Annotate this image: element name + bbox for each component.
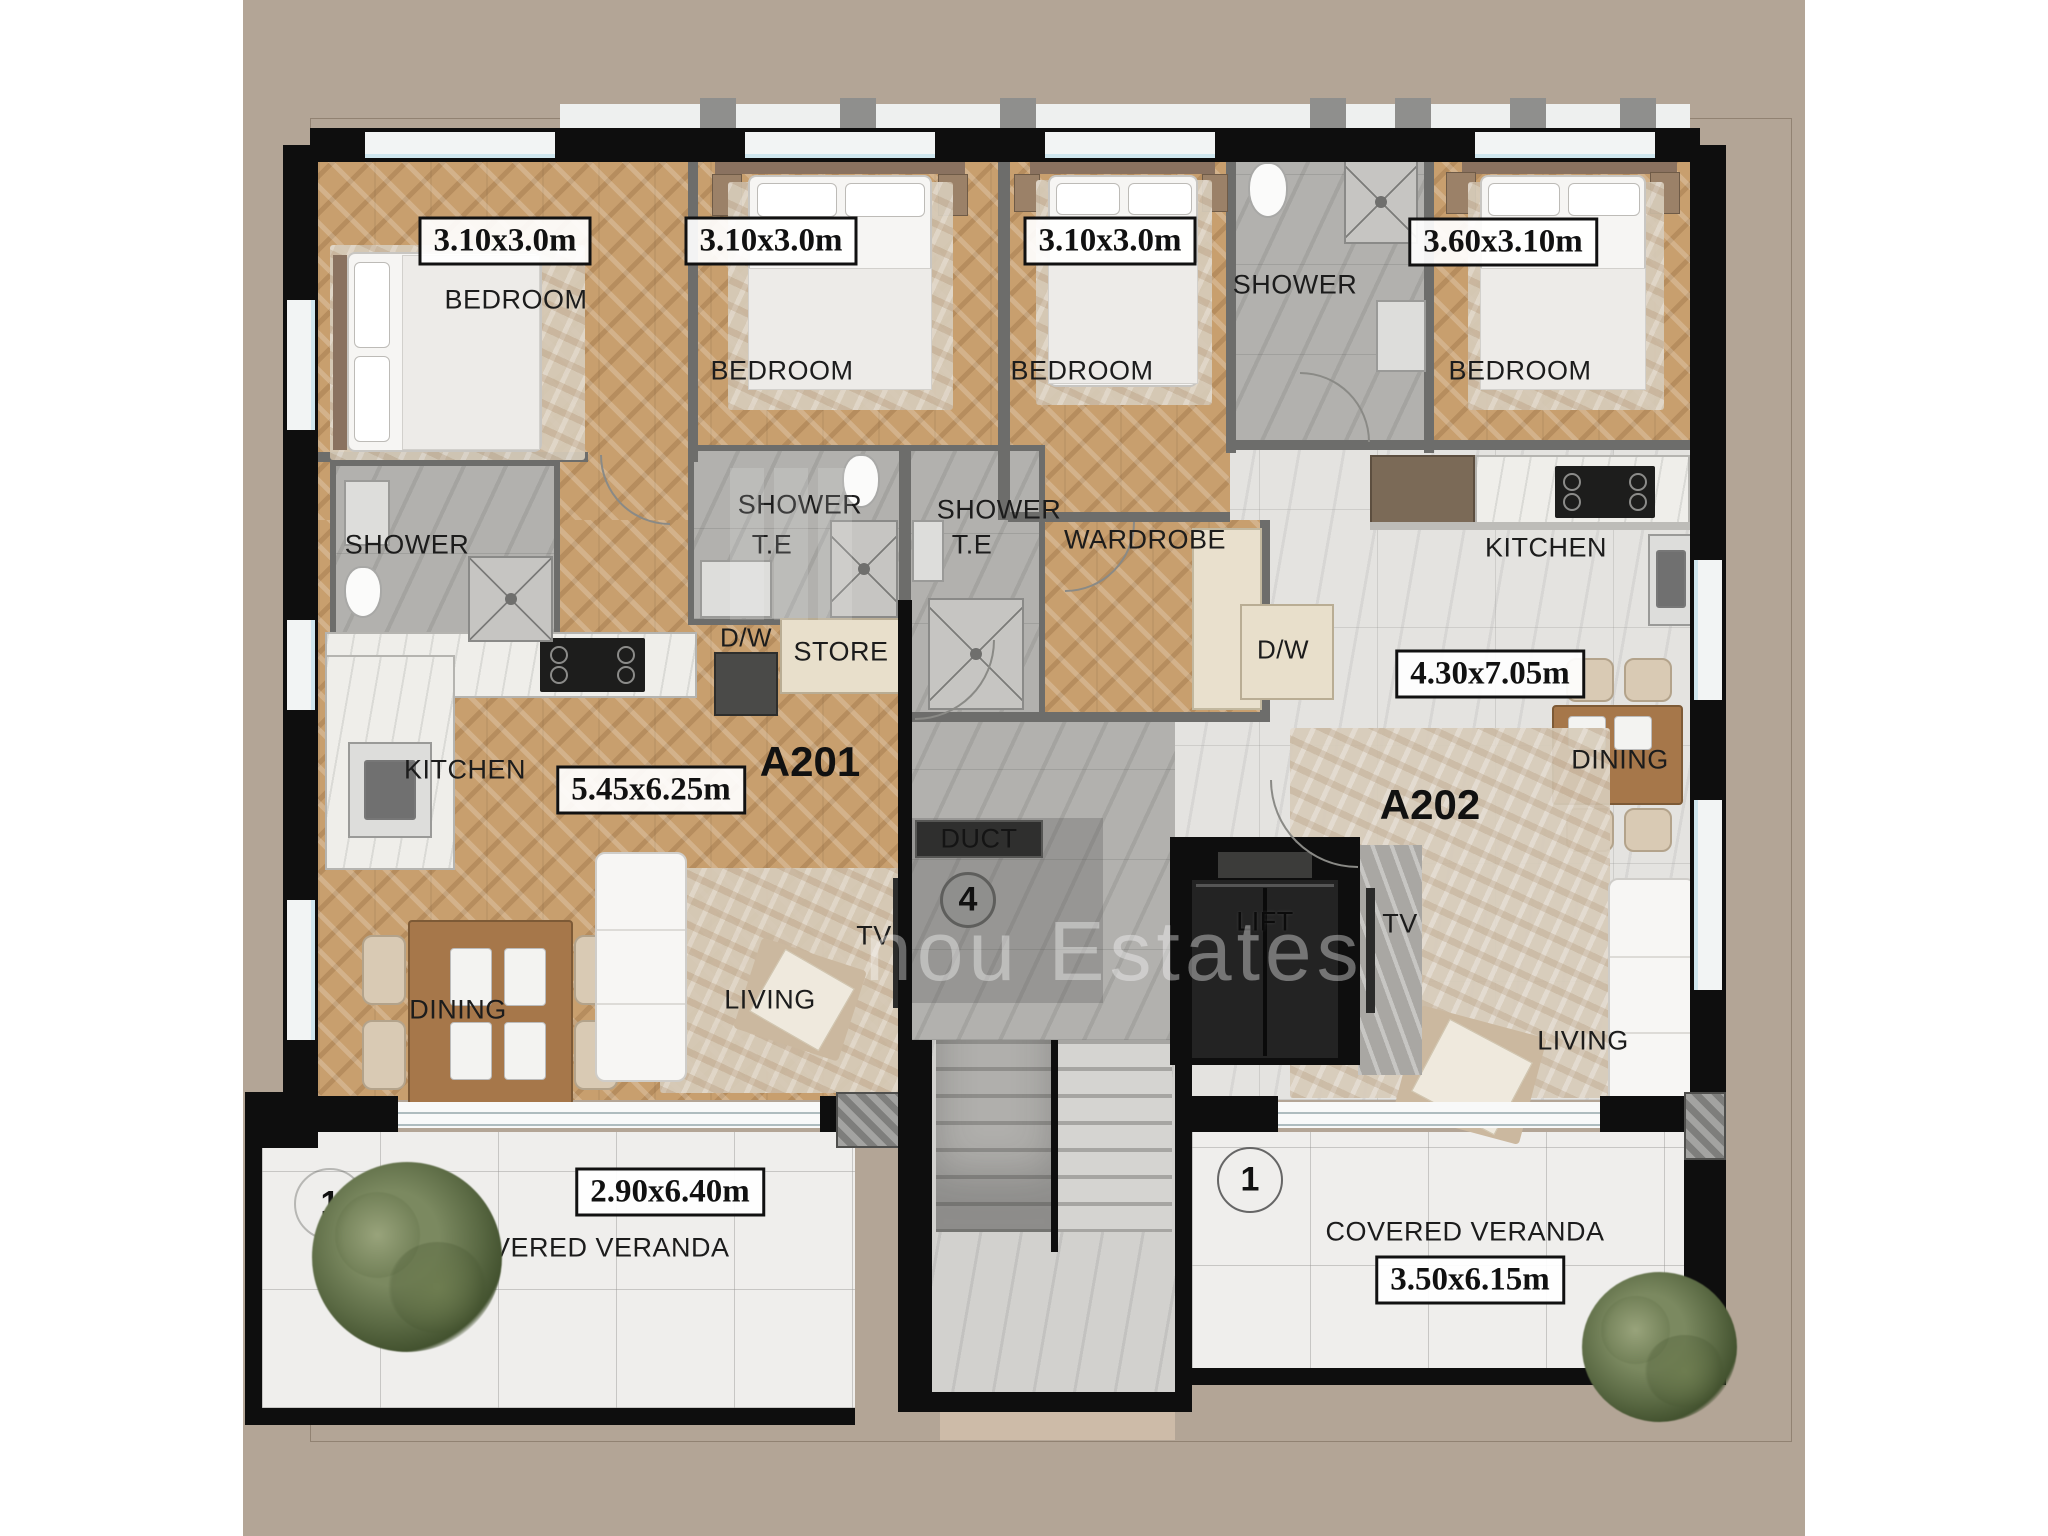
stairs-flight-down [936,1040,1052,1232]
dim-bedroom2: 3.10x3.0m [685,217,858,266]
shower-tray [1344,160,1418,244]
pillow [1568,183,1640,216]
label-veranda-right: COVERED VERANDA [1325,1217,1604,1248]
dim-bedroom1: 3.10x3.0m [419,217,592,266]
lift-door-line [1196,884,1334,887]
wall-stub [1310,98,1346,130]
tv-right-unit [1366,888,1375,1013]
window [287,300,315,430]
label-bedroom1: BEDROOM [444,285,587,316]
plant [312,1162,502,1352]
wall-a202-bottom-seg [1192,1096,1278,1132]
chair [1624,658,1672,702]
veranda-left-wall-w [245,1132,262,1425]
window [1694,800,1722,990]
counter-edge [1370,522,1690,530]
chair [1624,808,1672,852]
bath-sink [912,520,944,582]
wall-hall-top [905,712,1270,722]
dim-bedroom4: 3.60x3.10m [1408,218,1598,267]
pillow [1056,183,1120,215]
label-shower-te2: SHOWER [937,495,1062,526]
stove [1555,466,1655,518]
place-setting [504,948,546,1006]
stairs-flight-up [1058,1040,1172,1232]
window [1045,132,1215,158]
label-bedroom2: BEDROOM [710,356,853,387]
watermark-logo-bar [818,468,852,620]
sink-basin [1656,550,1686,608]
wall-br2-br3 [998,145,1010,520]
dim-veranda-right: 3.50x6.15m [1375,1256,1565,1305]
chair [362,935,406,1005]
sofa [595,852,687,1082]
window [287,620,315,710]
stairwell-wall-left [898,1040,932,1412]
label-wardrobe: WARDROBE [1064,525,1226,556]
window [745,132,935,158]
wall-a202-bottom-seg [1600,1096,1690,1132]
label-tv-right: TV [1382,909,1418,940]
dw-left-unit [714,652,778,716]
wall-a202-top-row-bottom [1230,440,1690,450]
watermark-text: nou Estates [865,903,1364,1000]
dim-veranda-left: 2.90x6.40m [575,1168,765,1217]
sliding-glass-door [1278,1102,1600,1128]
label-shower-te2-sub: T.E [952,530,993,561]
pillow [354,356,390,442]
label-dw-left: D/W [720,623,772,654]
sofa [1608,878,1696,1113]
pillow [757,183,837,217]
pillow [354,262,390,348]
label-living-left: LIVING [724,985,816,1016]
label-bedroom4: BEDROOM [1448,356,1591,387]
wall-stub [1395,98,1431,130]
window [287,900,315,1040]
place-setting [450,1022,492,1080]
wall-stub [1510,98,1546,130]
label-duct: DUCT [941,824,1018,855]
entrance-step [940,1412,1175,1440]
sliding-glass-door [398,1102,820,1128]
label-living-right: LIVING [1537,1026,1629,1057]
stairwell-wall-bottom [898,1392,1192,1412]
shower-tray [468,556,553,642]
dim-living-left: 5.45x6.25m [556,766,746,815]
label-dw-right: D/W [1257,635,1309,666]
toilet [1248,162,1288,218]
dim-bedroom3: 3.10x3.0m [1024,217,1197,266]
bath-sink [1376,300,1426,372]
label-dining-right: DINING [1571,745,1669,776]
chair [362,1020,406,1090]
label-store: STORE [793,637,888,668]
wall-stub [1000,98,1036,130]
watermark-logo-bar [774,468,808,620]
wall-br1-br2 [688,145,698,462]
label-kitchen-left: KITCHEN [404,755,526,786]
pier-hatched [1684,1092,1726,1160]
wall-stub [700,98,736,130]
wall-a201-bottom-seg [318,1096,398,1132]
wall-stub [1620,98,1656,130]
label-dining-left: DINING [409,995,507,1026]
veranda-corner-block [245,1092,318,1148]
kitchen-cabinet [1370,455,1475,528]
label-apartment-a201: A201 [760,738,860,786]
dim-living-right: 4.30x7.05m [1395,650,1585,699]
label-kitchen-right: KITCHEN [1485,533,1607,564]
toilet [344,566,382,618]
label-apartment-a202: A202 [1380,781,1480,829]
window [1475,132,1655,158]
pillow [845,183,925,217]
label-shower-top: SHOWER [1233,270,1358,301]
lift-corner [1192,852,1218,878]
watermark-logo-bar [730,468,764,620]
pillow [1128,183,1192,215]
veranda-right-marker: 1 [1241,1161,1260,1200]
window [365,132,555,158]
plant [1582,1272,1737,1422]
stairs-rail [1051,1040,1058,1252]
place-setting [504,1022,546,1080]
wall-stub [840,98,876,130]
stairwell-wall-right [1175,1060,1192,1412]
label-shower-left: SHOWER [345,530,470,561]
veranda-left-wall-s [245,1408,855,1425]
floor-plan-canvas: 3.10x3.0m 3.10x3.0m 3.10x3.0m 3.60x3.10m… [0,0,2048,1536]
pillow [1488,183,1560,216]
wall-shower-br4 [1424,145,1434,453]
window [1694,560,1722,700]
label-bedroom3: BEDROOM [1010,356,1153,387]
bed-headboard [333,255,347,450]
stove [540,638,645,692]
